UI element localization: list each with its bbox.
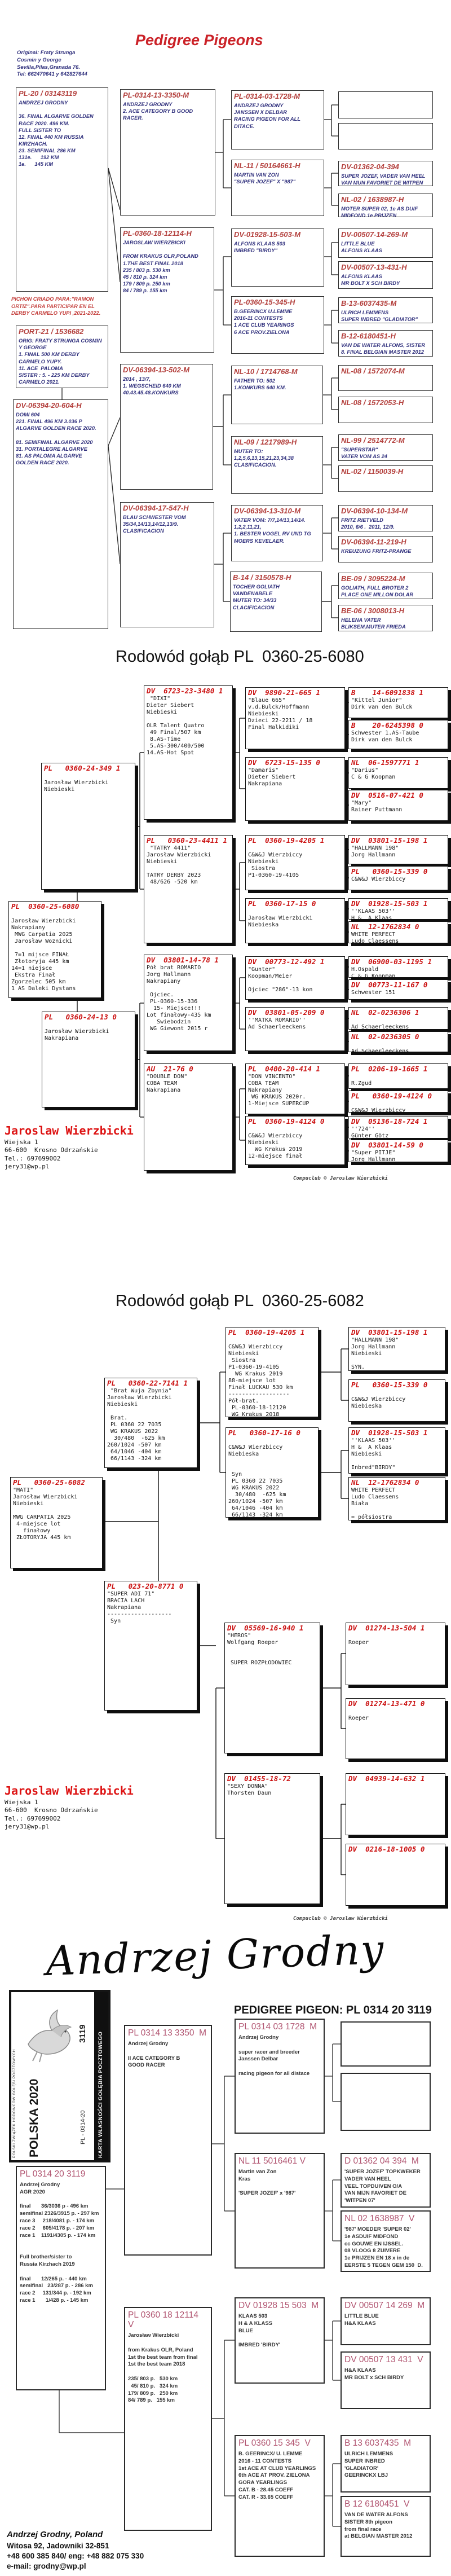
pedigree-box: PL 0314 13 3350 MAndrzej Grodny II ACE C…	[124, 2025, 212, 2256]
ownership-card-label: KARTA WŁASNOŚCI GOŁĘBIA POCZTOWEGO	[98, 1994, 104, 2158]
box-body: Andrzej Grodny AGR 2020 final 36/3036 p …	[20, 2182, 102, 2305]
box-body: Andrzej Grodny II ACE CATEGORY B GOOD RA…	[128, 2041, 208, 2069]
ring-number: B 12 6180451 V	[344, 2499, 427, 2509]
pigeon-photo	[18, 2000, 77, 2068]
pedigree-box	[341, 2021, 431, 2067]
box-body: Martin van Zon Kras 'SUPER JOZEF' x '987…	[238, 2169, 321, 2197]
pedigree-box: B 13 6037435 MULRICH LEMMENS SUPER INBRE…	[341, 2435, 431, 2493]
page-grodny-pedigree: Andrzej GrodnyPEDIGREE PIGEON: PL 0314 2…	[0, 0, 451, 2576]
ring-number: D 01362 04 394 M	[344, 2156, 427, 2166]
pigeon-photo-card: POLSKI ZWIĄZEK HODOWCÓW GOŁĘBI POCZTOWYC…	[9, 1990, 110, 2162]
pedigree-box: PL 0360 15 345 VB. GEERINCX/ U. LEMME 20…	[235, 2435, 325, 2557]
pedigree-box: PL 0314 03 1728 MAndrzej Grodny super ra…	[235, 2019, 325, 2134]
box-body: KLAAS 503 H & A KLASS BLUE IMBRED 'BIRDY…	[238, 2313, 321, 2349]
scanned-pedigree-document: Pedigree PigeonsOriginal: Fraty Strunga …	[0, 0, 451, 2576]
ring-number-big: 3119	[78, 1998, 87, 2043]
ring-number: DV 00507 14 269 M	[344, 2301, 427, 2310]
ring-number: NL 02 1638987 V	[344, 2214, 427, 2223]
pedigree-box	[341, 2073, 431, 2131]
box-body: B. GEERINCX/ U. LEMME 2016 - 11 CONTESTS…	[238, 2451, 321, 2502]
ring-number: PL 0314 13 3350 M	[128, 2028, 208, 2038]
ring-number-small: PL - 0314-20	[79, 2077, 86, 2144]
footer-owner: Andrzej Grodny, Poland	[7, 2530, 232, 2539]
pedigree-box: DV 01928 15 503 MKLAAS 503 H & A KLASS B…	[235, 2297, 325, 2384]
box-body: Andrzej Grodny super racer and breeder J…	[238, 2034, 321, 2078]
box-body: VAN DE WATER ALFONS SISTER 8th pigeon fr…	[344, 2512, 427, 2540]
box-body: 'SUPER JOZEF' TOPKWEKER VADER VAN HEEL V…	[344, 2169, 427, 2205]
box-body: ULRICH LEMMENS SUPER INBRED 'GLADIATOR' …	[344, 2451, 427, 2480]
pedigree-box: PL 0314 20 3119Andrzej Grodny AGR 2020 f…	[16, 2166, 106, 2390]
ring-number: B 13 6037435 M	[344, 2438, 427, 2448]
handwritten-title: Andrzej Grodny	[45, 1924, 413, 1985]
ring-number: PL 0314 20 3119	[20, 2169, 102, 2179]
pedigree-box: B 12 6180451 VVAN DE WATER ALFONS SISTER…	[341, 2496, 431, 2557]
association-label: POLSKI ZWIĄZEK HODOWCÓW GOŁĘBI POCZTOWYC…	[12, 1997, 16, 2158]
ring-number: DV 00507 13 431 V	[344, 2355, 427, 2364]
pedigree-box: DV 00507 13 431 VH&A KLAAS MR BOLT x SCH…	[341, 2351, 431, 2409]
ring-number: PL 0360 15 345 V	[238, 2438, 321, 2448]
box-body: LITTLE BLUE H&A KLAAS	[344, 2313, 427, 2328]
box-body: '987' MOEDER 'SUPER 02' 1e ASDUIF MIDFON…	[344, 2226, 427, 2270]
pedigree-box: D 01362 04 394 M'SUPER JOZEF' TOPKWEKER …	[341, 2153, 431, 2208]
box-body: H&A KLAAS MR BOLT x SCH BIRDY	[344, 2367, 427, 2382]
pedigree-box: NL 02 1638987 V'987' MOEDER 'SUPER 02' 1…	[341, 2210, 431, 2272]
ring-number: DV 01928 15 503 M	[238, 2301, 321, 2310]
ownership-card-band: KARTA WŁASNOŚCI GOŁĘBIA POCZTOWEGO	[94, 1992, 108, 2160]
pedigree-box: NL 11 5016461 VMartin van Zon Kras 'SUPE…	[235, 2153, 325, 2269]
pedigree-box: PL 0360 18 12114 VJarosław Wierzbicki fr…	[124, 2307, 212, 2531]
ring-number: NL 11 5016461 V	[238, 2156, 321, 2166]
pedigree-box: DV 00507 14 269 MLITTLE BLUE H&A KLAAS	[341, 2297, 431, 2345]
box-body: Jarosław Wierzbicki from Krakus OLR, Pol…	[128, 2332, 208, 2404]
country-year-label: POLSKA 2020	[27, 2076, 41, 2157]
page-subtitle: PEDIGREE PIGEON: PL 0314 20 3119	[234, 2004, 448, 2017]
ring-number: PL 0360 18 12114 V	[128, 2310, 208, 2329]
ring-number: PL 0314 03 1728 M	[238, 2022, 321, 2032]
